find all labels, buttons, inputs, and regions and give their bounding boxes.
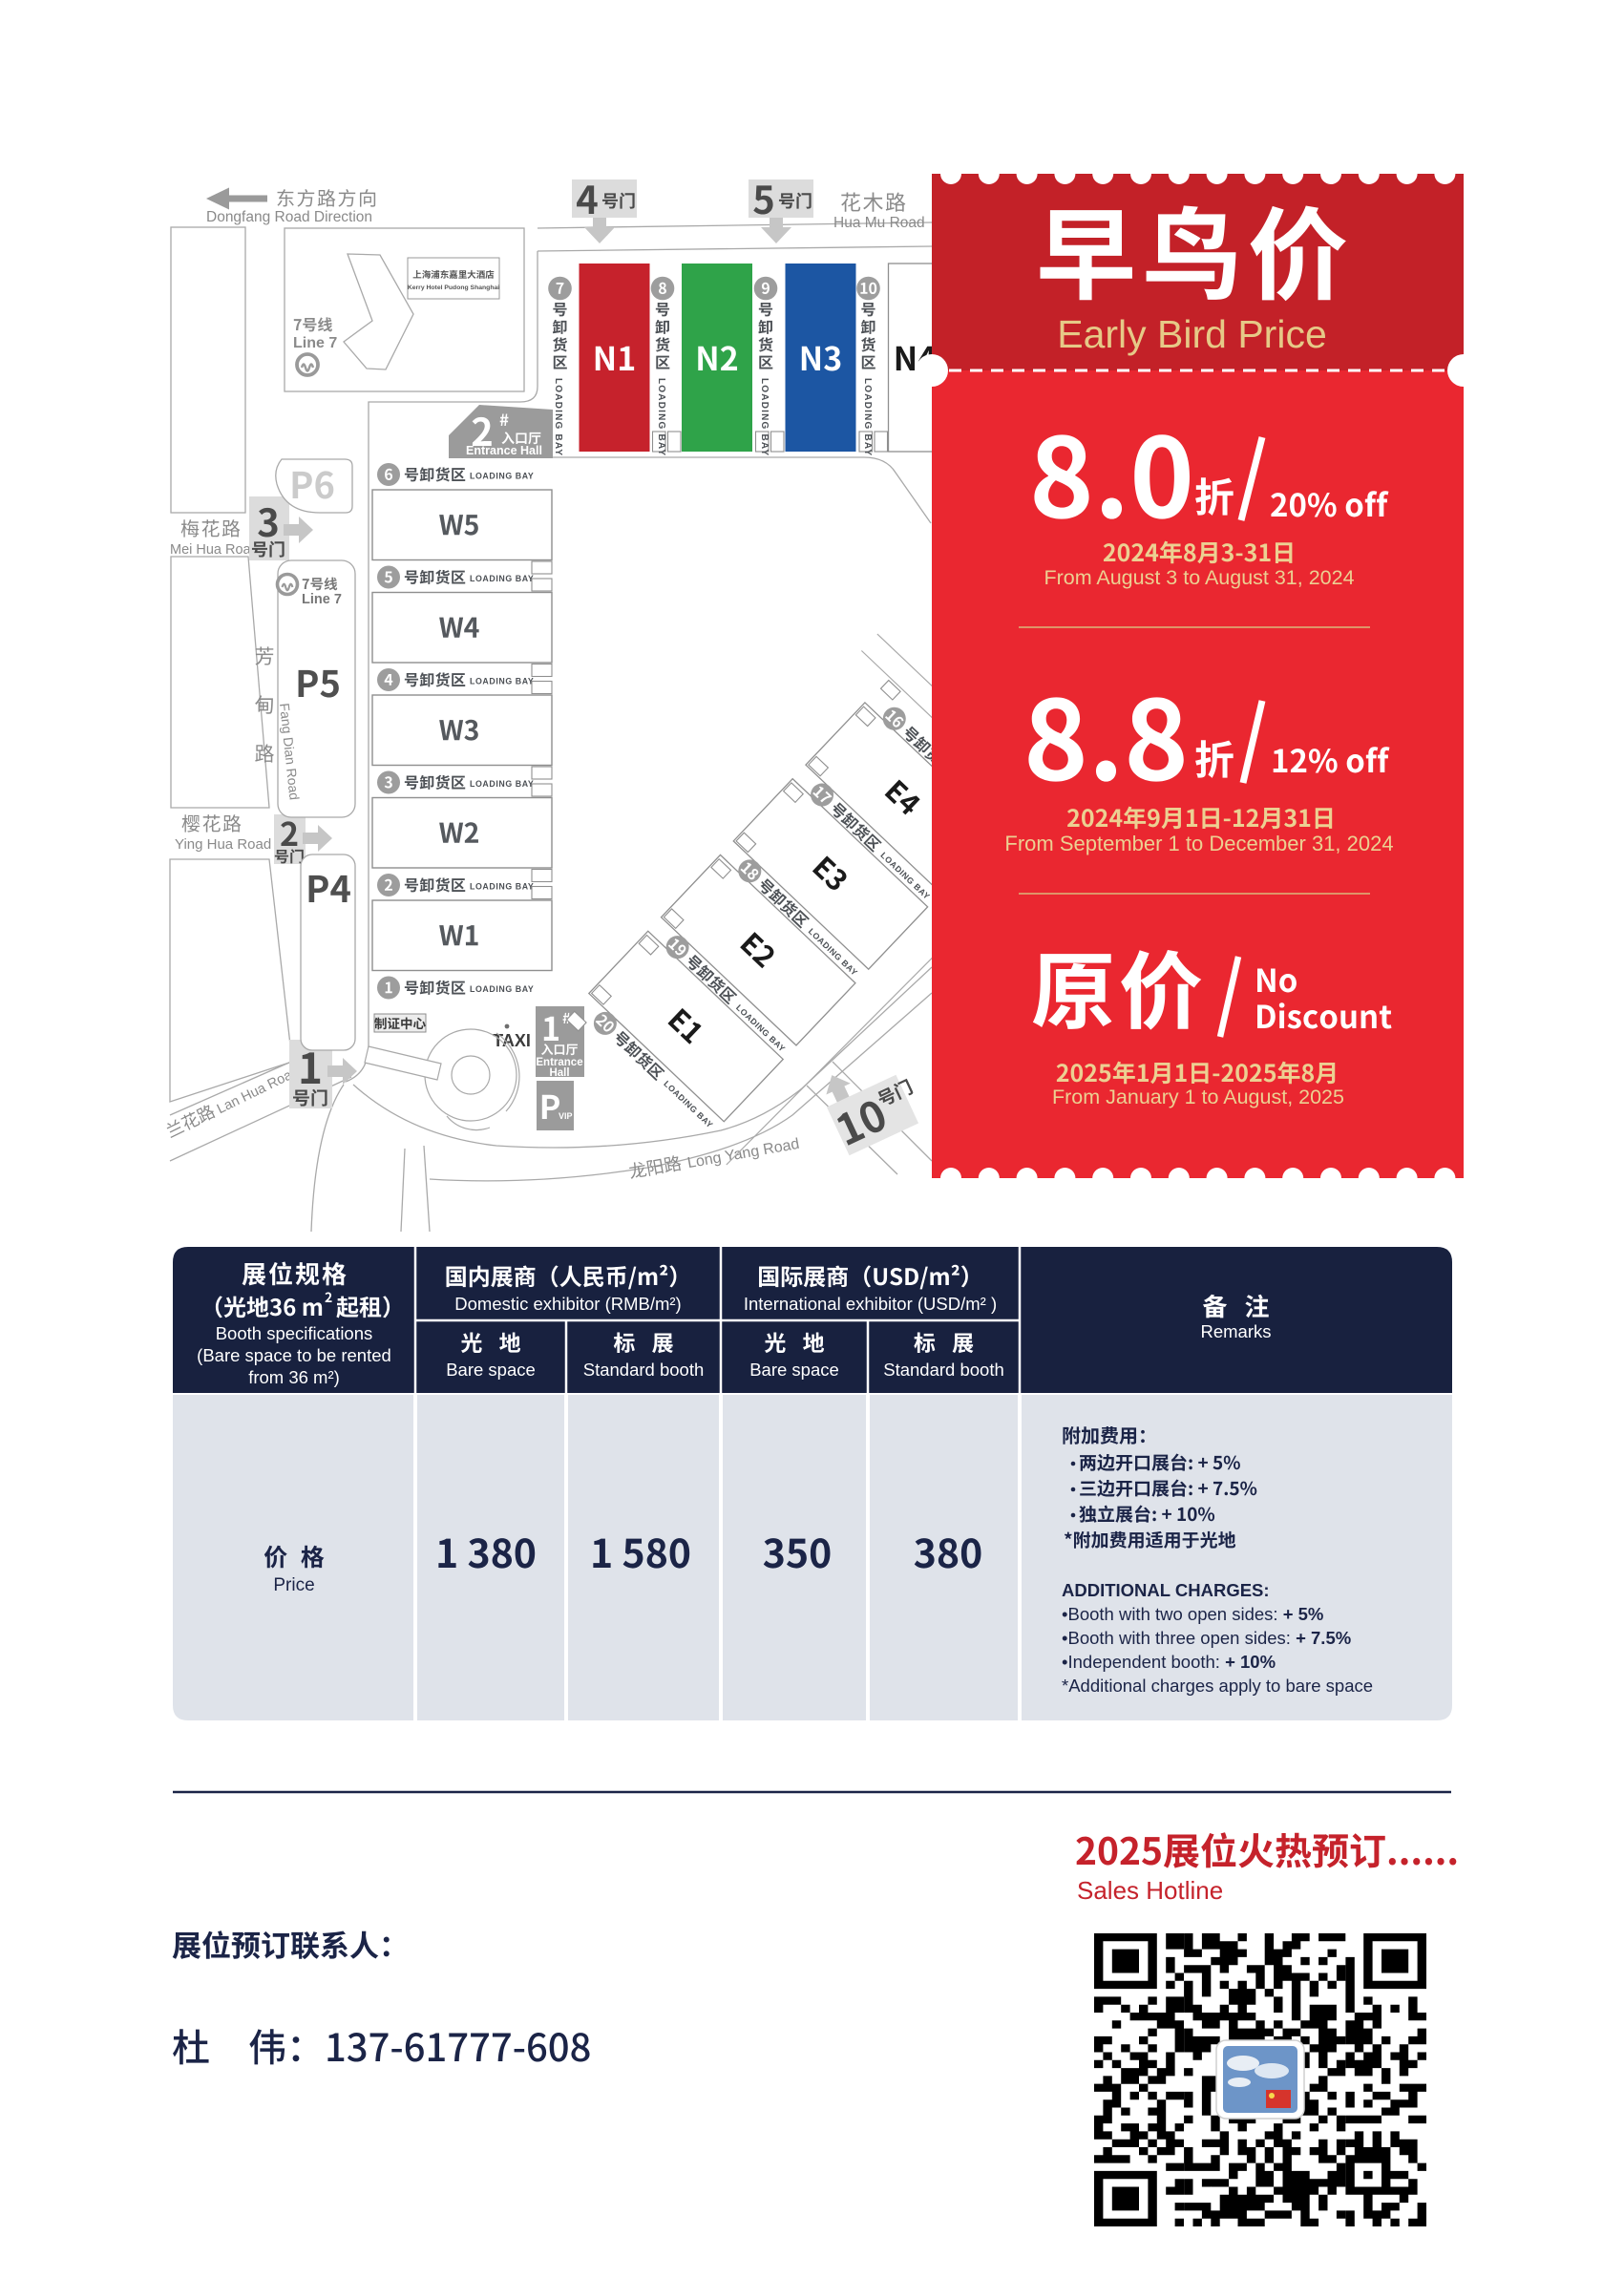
svg-text:Ying Hua Road: Ying Hua Road [175,836,271,853]
svg-text:From September 1 to December 3: From September 1 to December 31, 2024 [1004,832,1393,855]
svg-text:LOADING BAY: LOADING BAY [862,378,873,456]
svg-text:ADDITIONAL CHARGES:: ADDITIONAL CHARGES: [1062,1580,1270,1600]
svg-text:Standard booth: Standard booth [883,1360,1004,1380]
svg-text:LOADING BAY: LOADING BAY [470,677,534,686]
svg-text:Kerry Hotel Pudong Shanghai: Kerry Hotel Pudong Shanghai [408,285,499,291]
svg-text:From January 1 to August, 2025: From January 1 to August, 2025 [1052,1086,1344,1108]
svg-text:Booth specifications: Booth specifications [216,1323,373,1343]
svg-text:*Additional charges apply to b: *Additional charges apply to bare space [1062,1676,1373,1696]
svg-text:LOADING BAY: LOADING BAY [470,882,534,892]
svg-text:Line 7: Line 7 [293,335,337,351]
svg-text:from 36 m²): from 36 m²) [248,1367,340,1387]
svg-text:Hua Mu Road: Hua Mu Road [833,215,925,231]
svg-text:Price: Price [273,1575,314,1595]
svg-text:Hall: Hall [549,1067,569,1079]
svg-text:Early Bird Price: Early Bird Price [1057,312,1327,356]
svg-text:Domestic exhibitor (RMB/m²): Domestic exhibitor (RMB/m²) [454,1294,681,1314]
svg-text:From August 3 to August 31, 20: From August 3 to August 31, 2024 [1044,566,1354,589]
svg-text:LOADING BAY: LOADING BAY [470,472,534,481]
svg-text:(Bare space to be rented: (Bare space to be rented [197,1345,391,1365]
svg-text:Sales Hotline: Sales Hotline [1077,1876,1223,1905]
svg-text:•Booth with two open sides: +: •Booth with two open sides: + 5% [1062,1604,1323,1624]
svg-text:LOADING BAY: LOADING BAY [470,779,534,789]
svg-text:Bare space: Bare space [749,1360,839,1380]
svg-text:International exhibitor (USD/m: International exhibitor (USD/m² ) [744,1294,997,1314]
svg-text:Line 7: Line 7 [302,592,342,607]
svg-text:LOADING BAY: LOADING BAY [553,378,563,456]
svg-text:VIP: VIP [559,1111,573,1121]
svg-text:LOADING BAY: LOADING BAY [656,378,666,456]
svg-text:Dongfang Road Direction: Dongfang Road Direction [206,209,372,225]
svg-text:Standard booth: Standard booth [583,1360,705,1380]
svg-text:Remarks: Remarks [1200,1321,1271,1341]
svg-text:Entrance Hall: Entrance Hall [466,444,542,457]
svg-text:LOADING BAY: LOADING BAY [470,574,534,583]
svg-text:LOADING BAY: LOADING BAY [470,984,534,994]
svg-text:LOADING BAY: LOADING BAY [759,378,770,456]
svg-text:•Booth with three open sides:: •Booth with three open sides: + 7.5% [1062,1628,1351,1648]
svg-text:Bare space: Bare space [446,1360,536,1380]
svg-text:Mei Hua Road: Mei Hua Road [170,542,259,558]
svg-text:•Independent booth: + 10%: •Independent booth: + 10% [1062,1652,1276,1672]
